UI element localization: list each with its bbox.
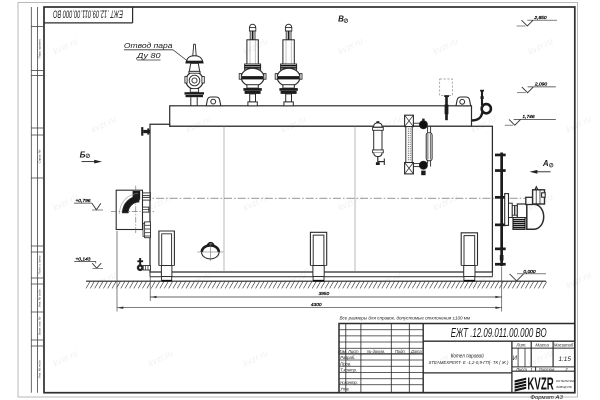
svg-text:Утв.: Утв.	[340, 386, 350, 391]
svg-text:Справ. №: Справ. №	[38, 149, 42, 163]
svg-text:№ докум.: № докум.	[367, 349, 385, 354]
svg-text:Листов: Листов	[538, 367, 555, 372]
svg-text:Масса: Масса	[535, 343, 549, 348]
svg-text:1:15: 1:15	[558, 356, 571, 363]
svg-text:2,850: 2,850	[533, 15, 547, 21]
svg-text:Масштаб: Масштаб	[554, 343, 574, 348]
svg-text:Лит.: Лит.	[515, 343, 526, 348]
svg-text:ЕЖТ .12.09.011.00.000 ВО: ЕЖТ .12.09.011.00.000 ВО	[451, 326, 547, 340]
svg-text:Все размеры для справок, допус: Все размеры для справок, допустимые откл…	[340, 316, 471, 321]
svg-text:Изм.: Изм.	[338, 349, 347, 354]
svg-text:Дата: Дата	[410, 349, 423, 354]
svg-text:Лист: Лист	[515, 367, 527, 372]
svg-text:1,746: 1,746	[522, 114, 535, 120]
svg-text:В: В	[338, 14, 344, 23]
svg-text:3950: 3950	[318, 291, 329, 297]
svg-text:Взам. инв. №: Взам. инв. №	[38, 316, 42, 335]
svg-text:Подп. и дата: Подп. и дата	[38, 255, 42, 274]
svg-text:2,090: 2,090	[534, 82, 548, 88]
svg-text:KVZR: KVZR	[527, 374, 553, 394]
svg-text:Перв. примен.: Перв. примен.	[38, 38, 42, 58]
svg-text:И: И	[513, 356, 518, 362]
svg-text:А: А	[542, 159, 549, 168]
svg-text:Инв. № подл.: Инв. № подл.	[38, 360, 42, 379]
svg-text:Б: Б	[80, 151, 86, 160]
svg-text:ЕЖТ .12.09.011.00.000 ВО: ЕЖТ .12.09.011.00.000 ВО	[53, 7, 123, 19]
svg-text:Инв. № дубл.: Инв. № дубл.	[38, 289, 42, 308]
svg-text:Формат А3: Формат А3	[530, 395, 563, 400]
svg-text:КОТЕЛЬНЫЙ: КОТЕЛЬНЫЙ	[556, 379, 576, 383]
svg-text:ЗАВОД РФ: ЗАВОД РФ	[556, 385, 572, 389]
svg-text:Т.контр.: Т.контр.	[340, 368, 357, 373]
svg-text:0,000: 0,000	[523, 269, 536, 275]
svg-text:Н.контр.: Н.контр.	[340, 380, 358, 385]
svg-text:4300: 4300	[311, 302, 322, 308]
svg-text:Подп.: Подп.	[395, 349, 406, 354]
